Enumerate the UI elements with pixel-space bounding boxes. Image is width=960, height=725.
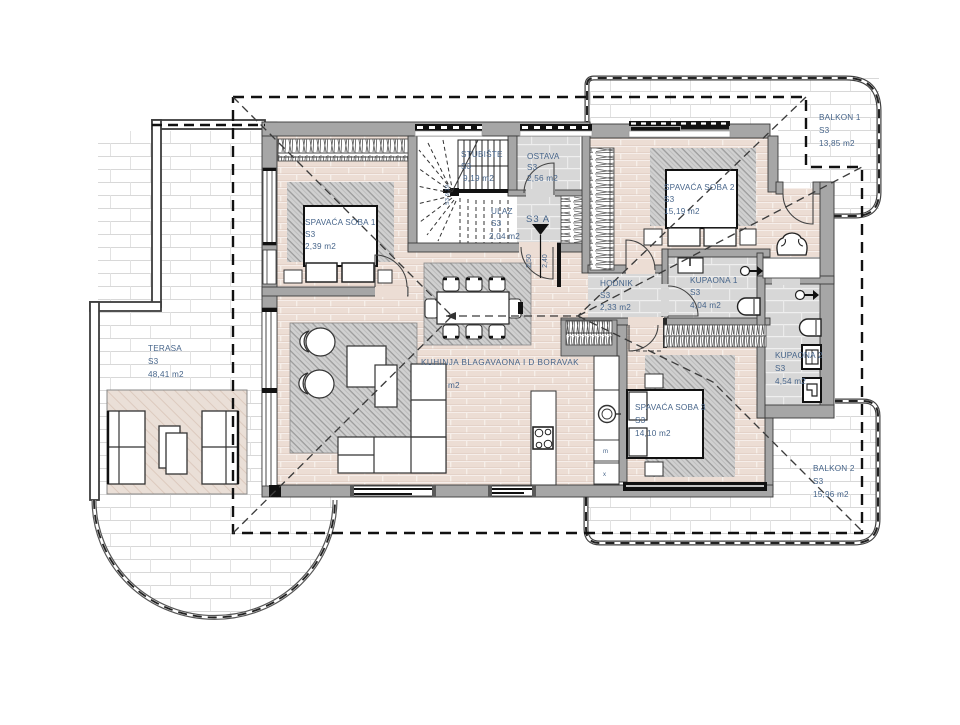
svg-text:BALKON 2: BALKON 2: [813, 464, 855, 473]
svg-text:2,50: 2,50: [526, 254, 533, 268]
svg-text:2,33 m2: 2,33 m2: [600, 303, 631, 312]
svg-text:S3: S3: [527, 163, 538, 172]
svg-text:48,41 m2: 48,41 m2: [148, 370, 184, 379]
svg-text:S3: S3: [148, 357, 159, 366]
svg-text:15,19 m2: 15,19 m2: [664, 207, 700, 216]
svg-text:x: x: [603, 472, 606, 478]
svg-text:HODNIK: HODNIK: [600, 279, 633, 288]
svg-text:OSTAVA: OSTAVA: [527, 152, 560, 161]
svg-text:2,04 m2: 2,04 m2: [489, 232, 520, 241]
svg-text:KUPAONA 1: KUPAONA 1: [690, 276, 738, 285]
svg-text:2,56 m2: 2,56 m2: [527, 174, 558, 183]
svg-text:14,10 m2: 14,10 m2: [635, 429, 671, 438]
svg-text:4,54 m2: 4,54 m2: [775, 377, 806, 386]
svg-text:4,04 m2: 4,04 m2: [690, 301, 721, 310]
svg-text:SPAVAĆA SOBA 1: SPAVAĆA SOBA 1: [305, 217, 376, 227]
svg-text:S3: S3: [600, 291, 611, 300]
svg-text:13,85 m2: 13,85 m2: [819, 139, 855, 148]
svg-text:STUBIŠTE: STUBIŠTE: [461, 149, 503, 159]
svg-text:S3: S3: [491, 219, 502, 228]
svg-text:KUPAONA 2: KUPAONA 2: [775, 351, 823, 360]
svg-text:S3: S3: [305, 230, 316, 239]
svg-text:m2: m2: [448, 381, 460, 390]
svg-text:S3: S3: [690, 288, 701, 297]
svg-text:2,40: 2,40: [542, 254, 549, 268]
svg-text:2,39 m2: 2,39 m2: [305, 242, 336, 251]
svg-text:S3: S3: [635, 416, 646, 425]
svg-text:BALKON 1: BALKON 1: [819, 113, 861, 122]
svg-text:S3: S3: [664, 195, 675, 204]
svg-text:m: m: [603, 449, 608, 455]
svg-text:SPAVAĆA SOBA 3: SPAVAĆA SOBA 3: [635, 402, 706, 412]
svg-text:SPAVAĆA SOBA 2: SPAVAĆA SOBA 2: [664, 182, 735, 192]
svg-text:S3 9,19: S3 9,19: [445, 185, 451, 205]
svg-text:KUHINJA BLAGAVAONA I D BORAVAK: KUHINJA BLAGAVAONA I D BORAVAK: [421, 358, 579, 367]
svg-text:TERASA: TERASA: [148, 344, 182, 353]
svg-text:9,19 m2: 9,19 m2: [463, 174, 494, 183]
svg-text:S3 A: S3 A: [526, 214, 550, 225]
svg-text:ULAZ: ULAZ: [491, 207, 513, 216]
svg-text:S3: S3: [775, 364, 786, 373]
svg-text:15,96 m2: 15,96 m2: [813, 490, 849, 499]
svg-text:S3: S3: [819, 126, 830, 135]
svg-text:S3: S3: [813, 477, 824, 486]
svg-text:S3: S3: [461, 162, 472, 171]
